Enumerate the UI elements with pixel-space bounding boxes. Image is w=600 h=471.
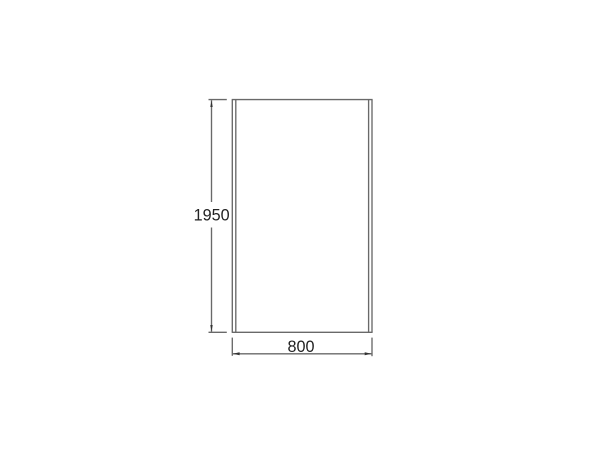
svg-text:800: 800 <box>287 338 314 356</box>
svg-text:1950: 1950 <box>194 206 230 224</box>
